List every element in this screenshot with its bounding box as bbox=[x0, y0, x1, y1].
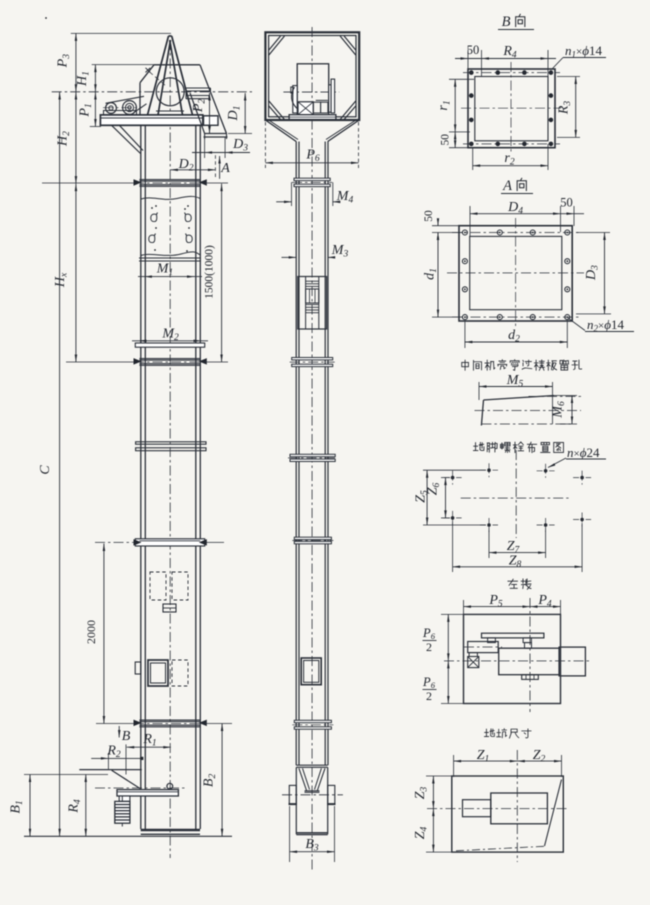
svg-text:50: 50 bbox=[467, 43, 480, 57]
svg-text:Z3: Z3 bbox=[413, 786, 430, 799]
svg-text:P6: P6 bbox=[305, 148, 320, 165]
svg-text:P3: P3 bbox=[56, 54, 73, 69]
svg-text:2000: 2000 bbox=[84, 620, 98, 644]
svg-text:M4: M4 bbox=[336, 189, 354, 206]
svg-text:Z8: Z8 bbox=[509, 554, 522, 571]
svg-text:50: 50 bbox=[560, 196, 573, 210]
svg-text:R4: R4 bbox=[67, 799, 84, 814]
svg-text:d2: d2 bbox=[508, 328, 520, 345]
svg-text:H1: H1 bbox=[75, 71, 92, 87]
svg-text:B3: B3 bbox=[305, 837, 319, 854]
svg-text:B2: B2 bbox=[202, 773, 219, 787]
svg-text:R1: R1 bbox=[142, 732, 156, 749]
svg-text:d1: d1 bbox=[423, 268, 440, 280]
svg-text:R3: R3 bbox=[556, 101, 573, 116]
svg-text:Z1: Z1 bbox=[477, 748, 490, 765]
svg-text:r1: r1 bbox=[436, 100, 453, 110]
svg-text:A: A bbox=[220, 161, 230, 176]
svg-text:Hx: Hx bbox=[53, 272, 70, 288]
svg-text:D3: D3 bbox=[584, 265, 601, 281]
svg-text:P6: P6 bbox=[422, 675, 436, 690]
svg-text:D3: D3 bbox=[232, 137, 248, 154]
svg-text:M5: M5 bbox=[506, 373, 524, 390]
svg-text:C: C bbox=[38, 465, 53, 475]
svg-text:D4: D4 bbox=[507, 200, 523, 217]
svg-text:50: 50 bbox=[440, 134, 452, 146]
svg-text:B: B bbox=[502, 14, 511, 30]
svg-text:R4: R4 bbox=[502, 44, 517, 61]
svg-text:r2: r2 bbox=[504, 151, 514, 168]
svg-text:2: 2 bbox=[426, 689, 432, 703]
svg-text:Z6: Z6 bbox=[426, 482, 443, 495]
svg-text:50: 50 bbox=[423, 210, 435, 222]
svg-text:M2: M2 bbox=[161, 327, 179, 344]
svg-text:2: 2 bbox=[426, 640, 432, 654]
svg-text:P5: P5 bbox=[488, 593, 503, 610]
svg-text:D2: D2 bbox=[178, 157, 194, 174]
svg-text:R2: R2 bbox=[106, 744, 121, 761]
svg-text:B1: B1 bbox=[9, 800, 26, 813]
svg-text:P4: P4 bbox=[537, 593, 552, 610]
svg-text:B: B bbox=[122, 729, 131, 744]
svg-text:Z4: Z4 bbox=[413, 826, 430, 839]
svg-text:Z2: Z2 bbox=[533, 748, 546, 765]
svg-text:n×ϕ24: n×ϕ24 bbox=[567, 445, 600, 460]
svg-text:H2: H2 bbox=[56, 131, 73, 147]
svg-text:M3: M3 bbox=[331, 243, 349, 260]
svg-text:D1: D1 bbox=[226, 106, 243, 122]
svg-text:n2×ϕ14: n2×ϕ14 bbox=[587, 317, 624, 334]
svg-text:P6: P6 bbox=[422, 626, 436, 641]
svg-text:P1: P1 bbox=[78, 103, 95, 117]
svg-text:A: A bbox=[502, 178, 512, 194]
svg-text:n1×ϕ14: n1×ϕ14 bbox=[565, 43, 602, 60]
svg-text:M6: M6 bbox=[551, 401, 568, 419]
svg-text:1500(1000): 1500(1000) bbox=[204, 245, 216, 299]
